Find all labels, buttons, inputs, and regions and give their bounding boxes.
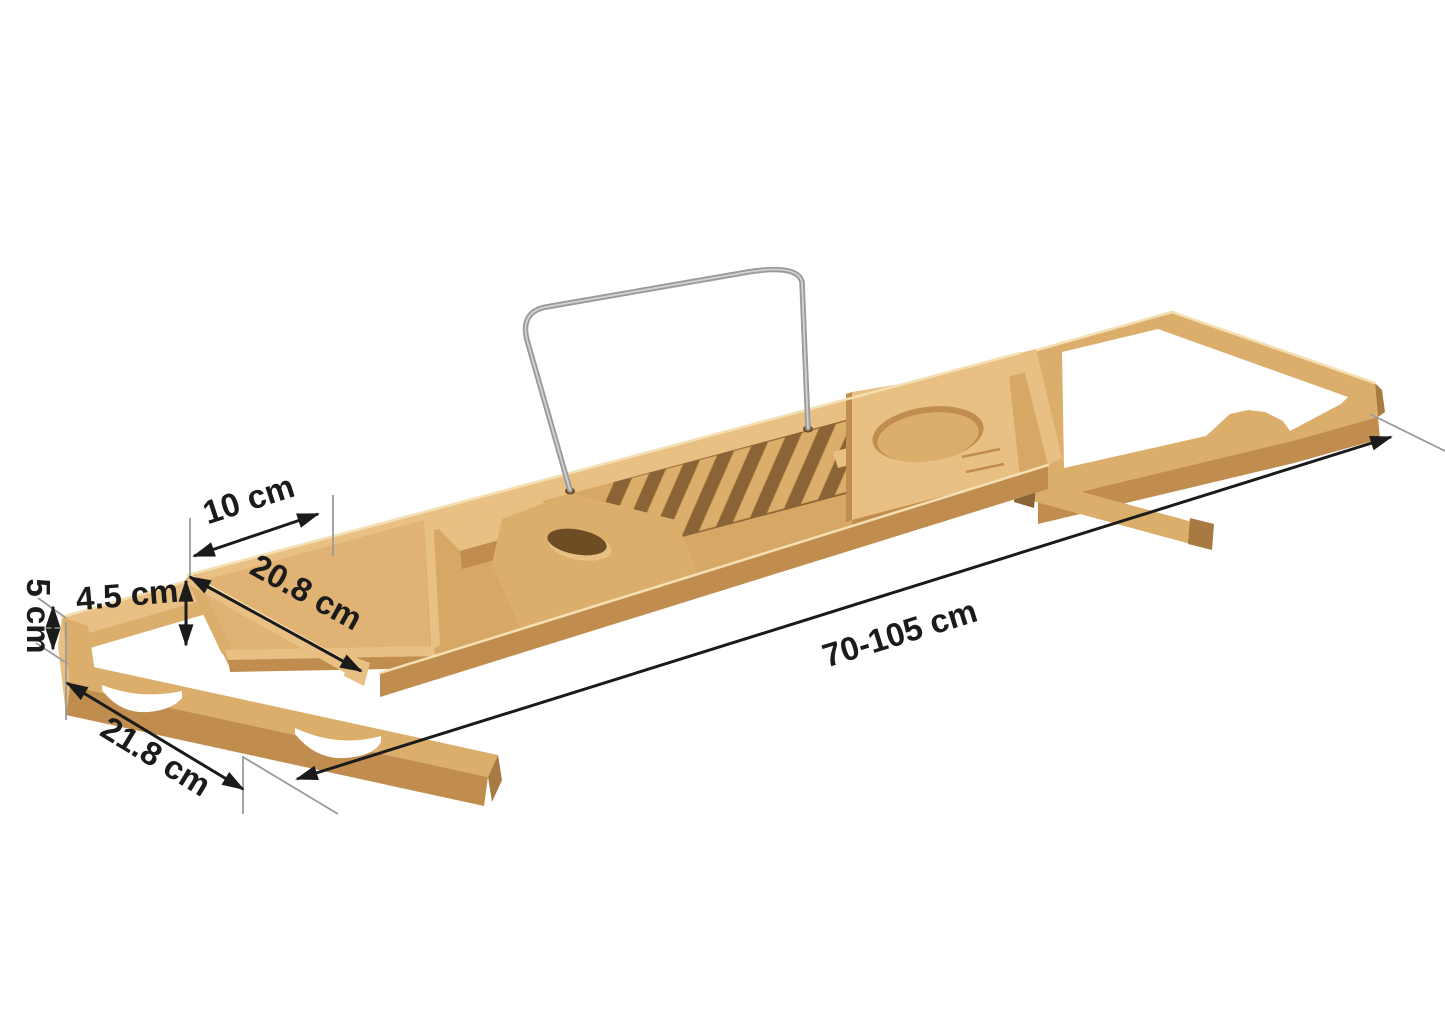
dimension-label-height: 5 cm bbox=[20, 578, 57, 653]
ext-line bbox=[1370, 414, 1445, 452]
dimension-label-soap: 10 cm bbox=[198, 467, 298, 531]
bathtub-caddy-diagram: 70-105 cm 21.8 cm 20.8 cm 10 cm 4.5 cm 5… bbox=[0, 0, 1445, 1033]
dimension-label-length: 70-105 cm bbox=[818, 592, 981, 675]
dimension-frame-height: 5 cm bbox=[20, 578, 57, 653]
dimension-diagram: 70-105 cm 21.8 cm 20.8 cm 10 cm 4.5 cm 5… bbox=[0, 0, 1445, 1033]
dimension-soap-section: 10 cm bbox=[194, 467, 318, 556]
platform-left-face bbox=[846, 392, 852, 522]
centre-section bbox=[186, 349, 1062, 697]
arm-foot bbox=[1188, 518, 1214, 550]
